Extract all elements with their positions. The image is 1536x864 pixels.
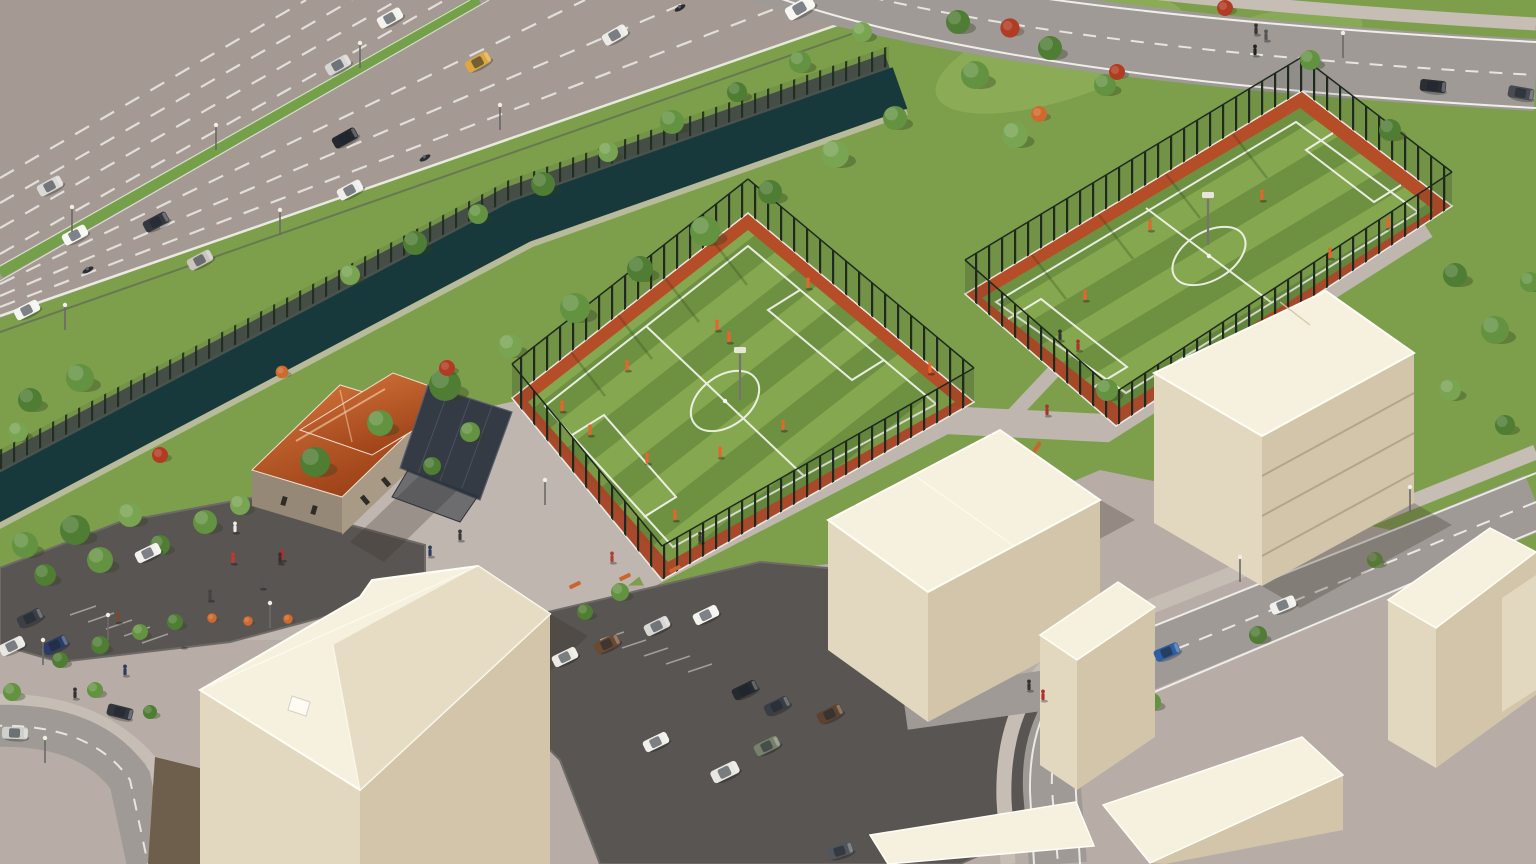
pitch2-center-spot [1207,254,1211,258]
building-face-sw [1502,575,1536,712]
aerial-render-stage: Aerial 3D architectural rendering of an … [0,0,1536,864]
car [2,727,30,742]
building-face-sw [1040,635,1077,790]
building-face-sw [1388,600,1436,768]
pitch1-center-spot [723,399,727,403]
aerial-render [0,0,1536,864]
